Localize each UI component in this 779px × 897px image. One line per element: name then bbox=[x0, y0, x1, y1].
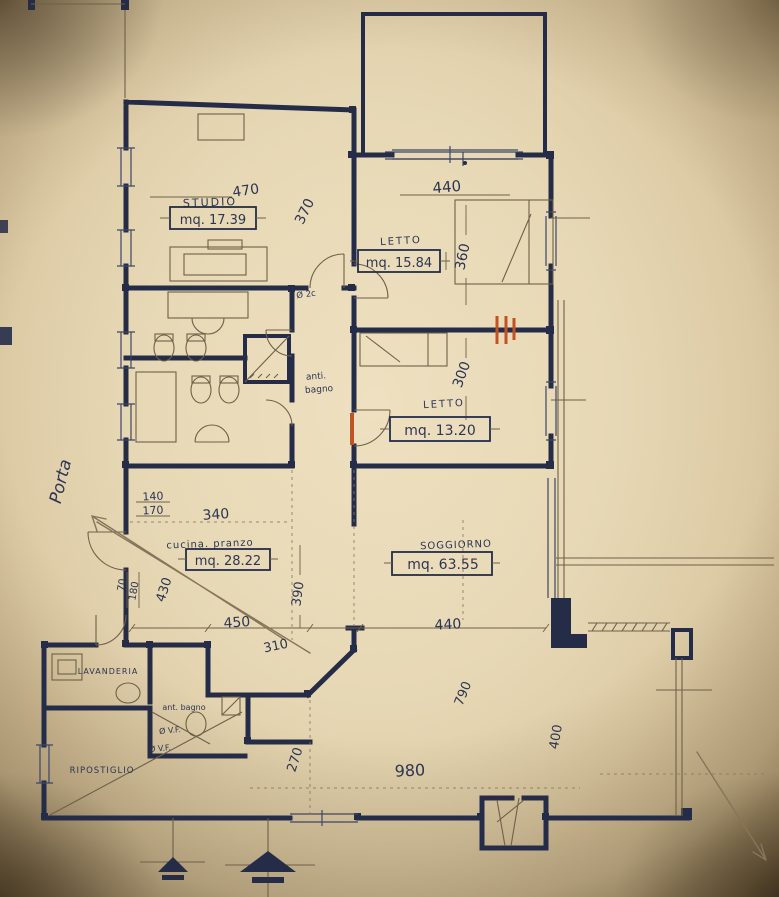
antibagno-label-line1: anti. bbox=[306, 371, 327, 382]
lavanderia-label: LAVANDERIA bbox=[78, 667, 139, 676]
labels: STUDIO mq. 17.39 LETTO mq. 15.84 LETTO m… bbox=[70, 195, 500, 776]
living-room-window bbox=[290, 810, 358, 826]
walls bbox=[44, 102, 692, 848]
roof-symbol-large bbox=[240, 851, 296, 872]
cucina-area: mq. 28.22 bbox=[195, 554, 261, 569]
dim-790: 790 bbox=[452, 679, 475, 708]
floor-plan-drawing: STUDIO mq. 17.39 LETTO mq. 15.84 LETTO m… bbox=[0, 0, 779, 897]
balcony bbox=[363, 14, 545, 166]
wall-end-block bbox=[681, 808, 692, 820]
bedroom2-wardrobe bbox=[360, 333, 447, 366]
dim-980: 980 bbox=[394, 760, 425, 781]
bathroom-walls bbox=[126, 288, 292, 470]
dim-400: 400 bbox=[547, 723, 566, 750]
entrance-symbols bbox=[140, 818, 315, 897]
ripostiglio-label: RIPOSTIGLIO bbox=[70, 766, 135, 776]
vf-mark-2: Ø V.F. bbox=[149, 742, 171, 754]
porta-annotation: Porta bbox=[46, 457, 76, 505]
antibagno-label-line2: bagno bbox=[305, 384, 334, 396]
studio-door bbox=[310, 254, 344, 288]
dim-270: 270 bbox=[285, 746, 307, 774]
dim-340: 340 bbox=[202, 506, 230, 524]
dim-450: 450 bbox=[223, 614, 251, 632]
balcony-walls bbox=[363, 14, 545, 152]
bathroom1-fixtures bbox=[154, 292, 248, 361]
bathroom2-door bbox=[266, 400, 292, 426]
terrace-column bbox=[673, 630, 691, 658]
storage-diagonal bbox=[50, 712, 242, 815]
dim-440-soggiorno: 440 bbox=[434, 616, 462, 633]
terrace-arrow bbox=[697, 752, 766, 860]
ant-bagno-label: ant. bagno bbox=[162, 703, 205, 712]
letto1-area: mq. 15.84 bbox=[366, 256, 432, 271]
bedroom1-bed bbox=[455, 200, 553, 284]
dim-140: 140 bbox=[142, 489, 164, 503]
dim-390: 390 bbox=[289, 581, 307, 608]
terrace-lines bbox=[556, 300, 774, 816]
windows bbox=[36, 146, 556, 826]
letto1-label: LETTO bbox=[380, 235, 422, 248]
laundry-door bbox=[96, 615, 126, 645]
letto2-area: mq. 13.20 bbox=[404, 423, 476, 439]
dim-70: 70 bbox=[116, 578, 129, 592]
terrace-corner-column bbox=[551, 598, 587, 648]
shaft bbox=[245, 336, 289, 382]
dim-300: 300 bbox=[450, 359, 474, 390]
dim-360: 360 bbox=[452, 242, 473, 271]
vf-mark-1: Ø V.F. bbox=[159, 724, 181, 736]
dim-370: 370 bbox=[292, 196, 318, 227]
edge-wall-stubs bbox=[0, 0, 129, 345]
entrance-vestibule bbox=[482, 798, 546, 848]
bedroom2-door bbox=[354, 410, 390, 446]
dim-440-top: 440 bbox=[432, 177, 462, 197]
floor-plan-photo: STUDIO mq. 17.39 LETTO mq. 15.84 LETTO m… bbox=[0, 0, 779, 897]
bathroom2-fixtures bbox=[136, 372, 239, 442]
dim-310: 310 bbox=[262, 637, 289, 657]
dim-170: 170 bbox=[142, 503, 164, 517]
laundry-fixtures bbox=[52, 654, 140, 703]
soggiorno-area: mq. 63.55 bbox=[407, 557, 479, 573]
letto2-label: LETTO bbox=[423, 398, 465, 411]
soggiorno-label: SOGGIORNO bbox=[420, 539, 492, 553]
bedroom1-balcony-window bbox=[392, 146, 518, 163]
studio-area: mq. 17.39 bbox=[180, 213, 246, 228]
entrance-door bbox=[88, 532, 126, 570]
dim-470: 470 bbox=[232, 181, 261, 201]
vestibule-steps bbox=[497, 798, 524, 846]
roof-symbol-small bbox=[158, 857, 188, 872]
terrace-glass-wall bbox=[548, 478, 555, 598]
dim-430: 430 bbox=[154, 576, 176, 604]
